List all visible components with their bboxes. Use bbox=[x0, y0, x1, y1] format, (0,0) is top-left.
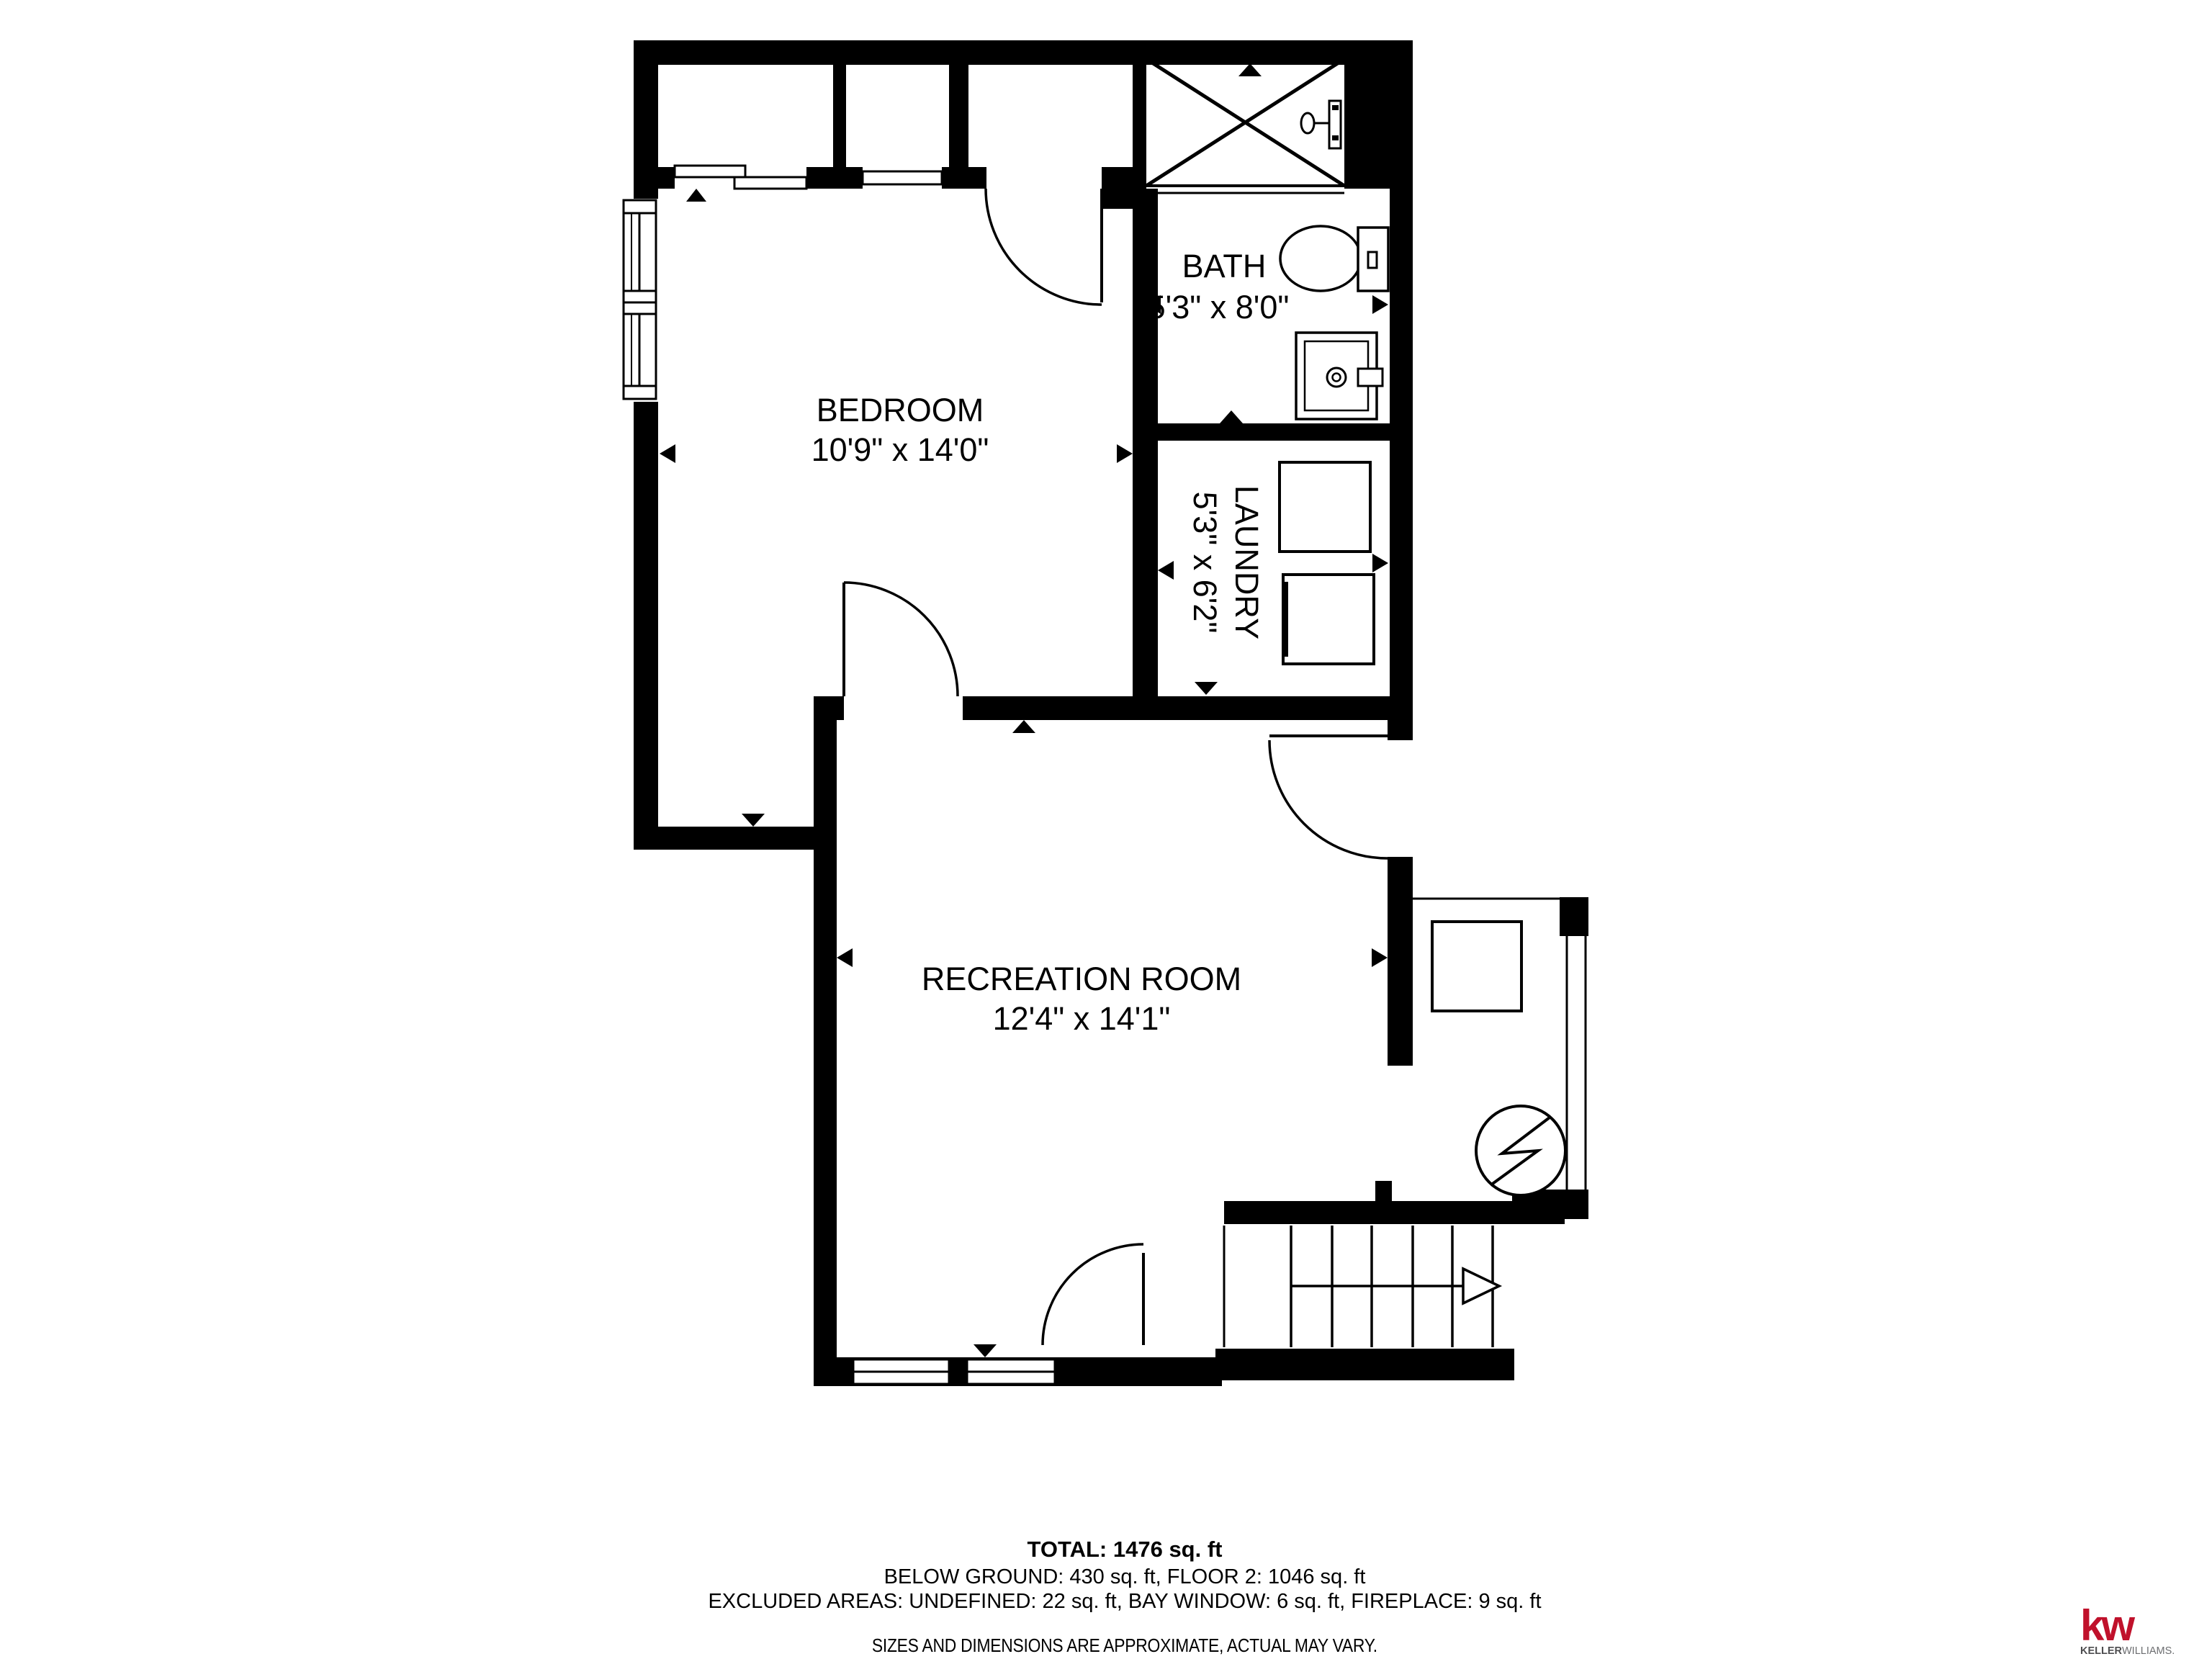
shower-valve-tick-2 bbox=[1332, 135, 1339, 140]
toilet-bowl-icon bbox=[1280, 226, 1361, 291]
wall-closet-divider-2 bbox=[949, 65, 968, 167]
wall-rec-right-a bbox=[1388, 720, 1413, 740]
bay-window-seat bbox=[1432, 922, 1521, 1011]
arrow-shower-up bbox=[1238, 63, 1262, 76]
walls bbox=[634, 40, 1588, 1386]
laundry-label: LAUNDRY bbox=[1228, 485, 1265, 639]
wall-bedroom-bath bbox=[1133, 189, 1158, 696]
wall-rec-left bbox=[814, 696, 837, 1386]
closet-doors bbox=[675, 166, 1102, 305]
laundry-appliances bbox=[1280, 462, 1374, 664]
kw-logo-mark: kw bbox=[2080, 1607, 2195, 1644]
bedroom-door-arc bbox=[844, 583, 958, 696]
window-sill-top bbox=[624, 200, 656, 213]
arrow-laundry-down bbox=[1195, 682, 1218, 695]
rec-door-stairs-arc bbox=[1043, 1244, 1143, 1345]
window-sill-mid-2 bbox=[624, 302, 656, 314]
arrow-rec-right bbox=[1372, 948, 1388, 967]
wall-rec-top bbox=[963, 696, 1413, 720]
arrow-bedroom-right bbox=[1117, 444, 1133, 463]
bath-dims: 5'3" x 8'0" bbox=[1148, 289, 1290, 325]
wall-bath-laundry bbox=[1158, 423, 1390, 441]
arrow-rec-left bbox=[837, 948, 853, 967]
bedroom-label: BEDROOM bbox=[817, 392, 984, 428]
wall-bay-corner-bottom bbox=[1565, 1190, 1588, 1219]
wall-right-bath bbox=[1390, 189, 1413, 720]
bath-fixtures bbox=[1280, 226, 1388, 419]
bath-label: BATH bbox=[1182, 248, 1267, 284]
arrow-bedroom-down bbox=[742, 814, 765, 827]
shower bbox=[1146, 59, 1344, 193]
floorplan-drawing: BEDROOM 10'9" x 14'0" BATH 5'3" x 8'0" L… bbox=[0, 0, 2212, 1659]
dryer-door-edge bbox=[1282, 582, 1288, 657]
keller-williams-logo: kw KELLERWILLIAMS. bbox=[2080, 1607, 2195, 1657]
kw-wordmark-keller: KELLER bbox=[2080, 1645, 2122, 1657]
closet-slider-panel-2 bbox=[734, 177, 806, 189]
shower-handle-icon bbox=[1301, 113, 1314, 133]
recreation-label: RECREATION ROOM bbox=[922, 961, 1241, 997]
arrow-laundry-up bbox=[1220, 410, 1243, 423]
wall-right-top bbox=[1344, 40, 1413, 189]
wall-stairs-top bbox=[1224, 1201, 1565, 1224]
wall-top bbox=[634, 40, 1413, 65]
total-area-text: TOTAL: 1476 sq. ft bbox=[37, 1537, 2212, 1563]
wall-rec-right-b bbox=[1388, 857, 1413, 1066]
dryer-icon bbox=[1283, 575, 1374, 664]
arrow-rec-up bbox=[1012, 720, 1035, 733]
disclaimer-text: SIZES AND DIMENSIONS ARE APPROXIMATE, AC… bbox=[37, 1635, 2212, 1657]
wall-closet-front-3 bbox=[942, 167, 986, 189]
floorplan-page: BEDROOM 10'9" x 14'0" BATH 5'3" x 8'0" L… bbox=[0, 0, 2212, 1659]
bedroom-dims: 10'9" x 14'0" bbox=[811, 431, 989, 468]
arrow-bedroom-left bbox=[660, 444, 675, 463]
arrow-laundry-left bbox=[1158, 561, 1174, 580]
laundry-dims: 5'3" x 6'2" bbox=[1187, 492, 1223, 634]
fireplace bbox=[1476, 1106, 1565, 1195]
wall-stairs-bottom bbox=[1215, 1349, 1514, 1380]
wall-bedroom-bottom bbox=[634, 827, 837, 850]
wall-left bbox=[634, 40, 658, 850]
recreation-dims: 12'4" x 14'1" bbox=[993, 1000, 1171, 1037]
stairs bbox=[1224, 1226, 1499, 1347]
bedroom-windows bbox=[624, 199, 660, 402]
wall-closet-front-2 bbox=[806, 167, 863, 189]
arrow-laundry-right bbox=[1372, 554, 1388, 572]
washer-icon bbox=[1280, 462, 1370, 552]
arrow-rec-down bbox=[974, 1344, 997, 1357]
laundry-label-group: LAUNDRY 5'3" x 6'2" bbox=[1187, 485, 1265, 639]
floor-areas-text: BELOW GROUND: 430 sq. ft, FLOOR 2: 1046 … bbox=[37, 1565, 2212, 1589]
arrow-closet-up bbox=[686, 189, 706, 202]
room-labels: BEDROOM 10'9" x 14'0" BATH 5'3" x 8'0" L… bbox=[811, 248, 1290, 1037]
disclaimer-text-inner: SIZES AND DIMENSIONS ARE APPROXIMATE, AC… bbox=[872, 1635, 1377, 1657]
excluded-areas-text: EXCLUDED AREAS: UNDEFINED: 22 sq. ft, BA… bbox=[37, 1590, 2212, 1614]
kw-logo-wordmark: KELLERWILLIAMS. bbox=[2080, 1646, 2195, 1657]
window-sill-mid-1 bbox=[624, 291, 656, 302]
toilet-flush-icon bbox=[1368, 252, 1377, 268]
wall-closet-front-1 bbox=[634, 167, 675, 189]
kw-wordmark-williams: WILLIAMS. bbox=[2122, 1645, 2175, 1657]
sink-faucet-icon bbox=[1358, 369, 1382, 386]
wall-rec-top-stub bbox=[814, 696, 844, 720]
wall-bay-corner-top bbox=[1560, 897, 1588, 936]
window-sill-bottom bbox=[624, 386, 656, 399]
rec-door-right-arc bbox=[1269, 740, 1388, 858]
shower-valve-tick-1 bbox=[1332, 105, 1339, 110]
wall-stairs-notch bbox=[1375, 1181, 1392, 1204]
wall-shower-left bbox=[1133, 58, 1146, 189]
closet-door-arc bbox=[986, 189, 1102, 305]
arrow-bath-right bbox=[1372, 295, 1388, 314]
closet-slider-panel-1 bbox=[675, 166, 745, 177]
wall-closet-divider-1 bbox=[833, 65, 846, 167]
closet-slider-panel-3 bbox=[863, 171, 942, 184]
sink-drain-inner bbox=[1333, 374, 1341, 382]
